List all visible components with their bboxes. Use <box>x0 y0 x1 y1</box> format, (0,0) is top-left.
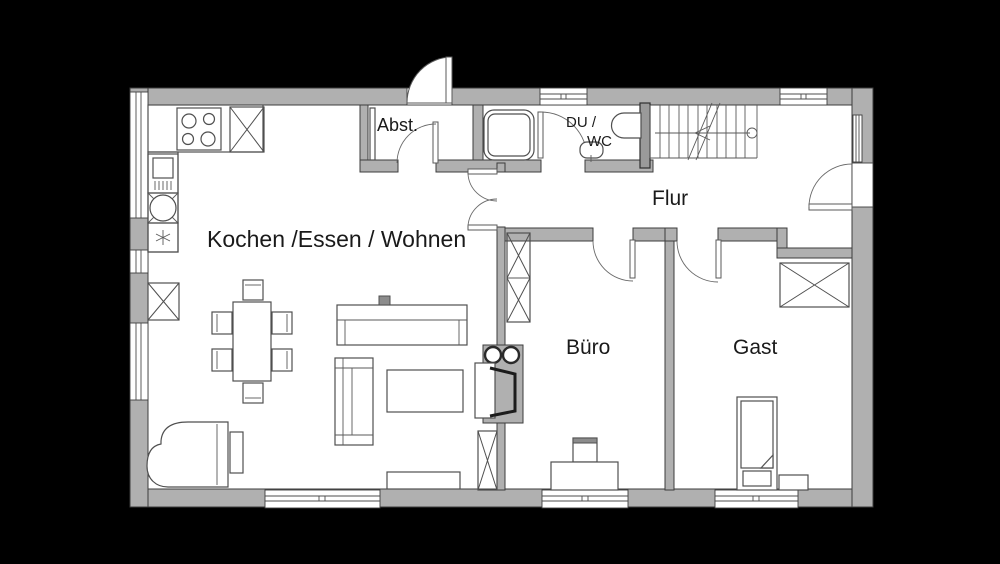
sofa <box>335 358 373 445</box>
wall-storage-shower <box>473 105 483 163</box>
dining-chair <box>212 349 232 371</box>
wall-guest-top-b <box>718 228 780 241</box>
window-living-left <box>130 323 148 400</box>
bath-sink <box>612 113 642 138</box>
label-storage: Abst. <box>377 115 418 135</box>
floor-plan-drawing: Kochen /Essen / Wohnen Abst. DU / WC Flu… <box>0 0 1000 564</box>
pillow <box>743 471 771 486</box>
wall-entry-niche-h <box>777 248 852 258</box>
window-living-bottom <box>265 490 380 508</box>
dining-chair <box>243 280 263 300</box>
label-office: Büro <box>566 336 610 359</box>
label-bath-line2: WC <box>587 133 612 150</box>
dining-chair <box>272 312 292 334</box>
sideboard-low <box>387 472 460 489</box>
nightstand <box>779 475 808 490</box>
dining-chair <box>212 312 232 334</box>
wall-service-south-a <box>360 160 398 172</box>
label-kitchen-living: Kochen /Essen / Wohnen <box>207 226 466 252</box>
dining-table <box>233 302 271 381</box>
dining-chair <box>272 349 292 371</box>
window-kitchen-left <box>130 92 148 218</box>
desk-chair <box>573 438 597 462</box>
window-office-bottom <box>542 490 628 508</box>
tv-device <box>379 296 390 305</box>
label-hall: Flur <box>652 187 688 210</box>
window-bath-top <box>540 88 587 105</box>
guest-bed <box>737 397 777 490</box>
piano-bench <box>230 432 243 473</box>
wall-living-hall-stub <box>497 163 505 172</box>
dining-chair <box>243 383 263 403</box>
window-left-small <box>130 250 148 273</box>
coffee-table <box>387 370 463 412</box>
storage-shelf <box>370 108 375 160</box>
window-entry-top <box>780 88 827 105</box>
wall-storage-left <box>360 105 368 163</box>
wall-office-guest <box>665 241 674 490</box>
window-entry-sidelight <box>853 115 862 162</box>
wall-guest-top-a <box>665 228 677 241</box>
desk <box>551 462 618 490</box>
floor-plan-canvas: Kochen /Essen / Wohnen Abst. DU / WC Flu… <box>0 0 1000 564</box>
label-bath-line1: DU / <box>566 114 597 131</box>
wall-office-top-a <box>505 228 593 241</box>
window-guest-bottom <box>715 490 798 508</box>
label-guest: Gast <box>733 336 778 359</box>
wall-office-top-b <box>633 228 665 241</box>
